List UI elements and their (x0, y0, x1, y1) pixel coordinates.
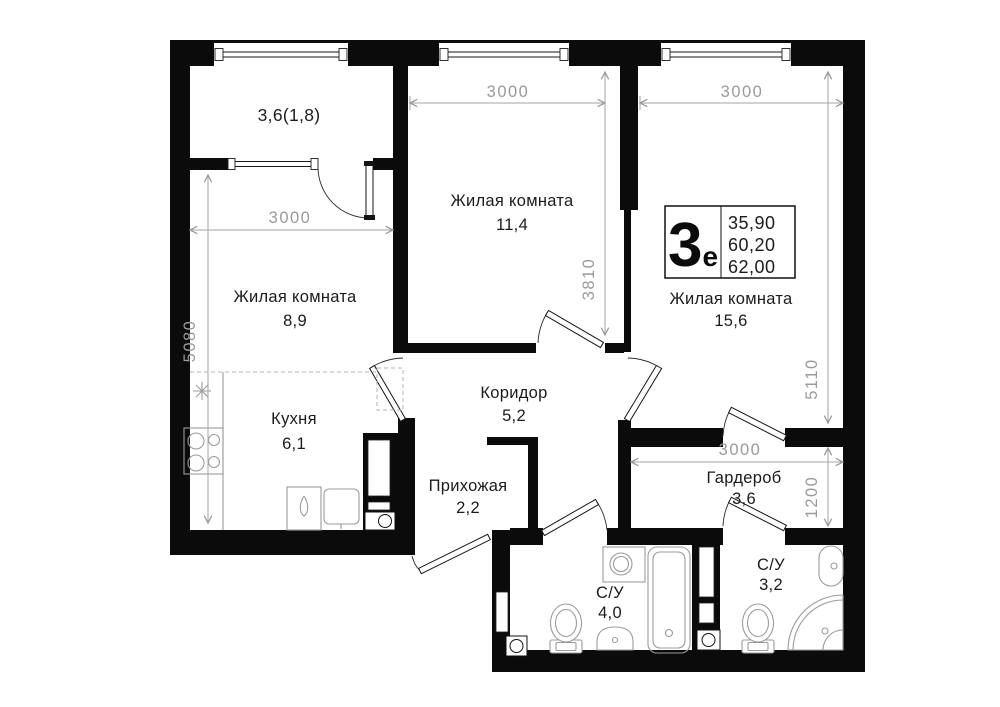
legend-area-1: 35,90 (728, 213, 776, 233)
wall-niche (368, 440, 390, 496)
living-top-name-label: Жилая комната (450, 192, 574, 210)
wall-corridor-wardrobe (618, 420, 631, 545)
wall-wardrobe-top-b (785, 428, 843, 447)
wardrobe-area-label: 3,6 (732, 490, 756, 508)
wall-niche (699, 547, 714, 597)
dim-wardrobe-width: 3000 (719, 441, 762, 459)
window-icon (214, 43, 348, 66)
kitchen-area-label: 6,1 (282, 435, 306, 453)
wall-balcony-partition-a (190, 158, 228, 170)
wall-hall-kitchen (398, 418, 415, 530)
dim-living-right-height: 5110 (803, 358, 821, 399)
wall-living-left-divider (393, 66, 408, 353)
hallway-area-label: 2,2 (456, 499, 480, 517)
living-right-area-label: 15,6 (714, 312, 747, 330)
living-left-name-label: Жилая комната (233, 288, 357, 306)
wall-hall-stub-v (528, 445, 538, 528)
window-icon (661, 43, 791, 66)
legend-area-2: 60,20 (728, 235, 776, 255)
wall-central-lower (624, 210, 631, 352)
wall-central-upper (620, 66, 638, 210)
vent-shaft-icon (365, 512, 395, 530)
kitchen-name-label: Кухня (271, 410, 317, 428)
dim-living-right-width: 3000 (721, 83, 764, 101)
wall-kitchen-bottom (170, 530, 415, 555)
legend-area-3: 62,00 (728, 257, 776, 277)
apartment-type-legend: 3е 35,90 60,20 62,00 (665, 206, 795, 280)
living-right-name-label: Жилая комната (669, 290, 793, 308)
bath-right-area-label: 3,2 (759, 576, 783, 594)
dim-living-top-height: 3810 (580, 258, 598, 301)
vent-shaft-icon (697, 630, 720, 650)
wall-bath-top-a (510, 528, 543, 545)
wardrobe-name-label: Гардероб (707, 469, 782, 487)
wall-balcony-partition-b (373, 158, 395, 170)
living-top-area-label: 11,4 (496, 216, 528, 234)
corridor-area-label: 5,2 (502, 407, 526, 425)
wall-niche (699, 603, 714, 623)
corridor-name-label: Коридор (480, 384, 547, 402)
living-left-area-label: 8,9 (283, 312, 307, 330)
wall-niche (496, 592, 508, 632)
wall-under-living-top-b (605, 343, 624, 353)
floor-plan: 3000 3000 3810 5110 3000 5080 3000 1200 … (0, 0, 1000, 707)
wall-hall-stub-h (487, 437, 538, 445)
toilet-icon (742, 604, 774, 653)
bath-right-name-label: С/У (757, 556, 785, 574)
type-suffix: е (702, 241, 718, 272)
dim-living-left-height: 5080 (181, 320, 199, 363)
vent-shaft-icon (506, 636, 527, 656)
wall-bath-top-c (785, 528, 843, 545)
wall-right (843, 40, 865, 672)
floor-plan-page: 3000 3000 3810 5110 3000 5080 3000 1200 … (0, 0, 1000, 707)
balcony-area-label: 3,6(1,8) (258, 105, 321, 125)
wall-under-living-top-a (393, 343, 536, 353)
dim-living-top-width: 3000 (487, 83, 530, 101)
bath-left-name-label: С/У (596, 584, 624, 602)
hallway-name-label: Прихожая (429, 477, 508, 495)
wall-left (170, 40, 190, 555)
dim-wardrobe-height: 1200 (803, 476, 821, 519)
type-number: 3 (668, 211, 702, 280)
wall-niche (368, 502, 390, 510)
bath-left-area-label: 4,0 (598, 604, 622, 622)
toilet-icon (550, 604, 582, 653)
window-icon (439, 43, 569, 66)
wall-wardrobe-top-a (631, 428, 723, 447)
dim-living-left-width: 3000 (269, 209, 312, 227)
